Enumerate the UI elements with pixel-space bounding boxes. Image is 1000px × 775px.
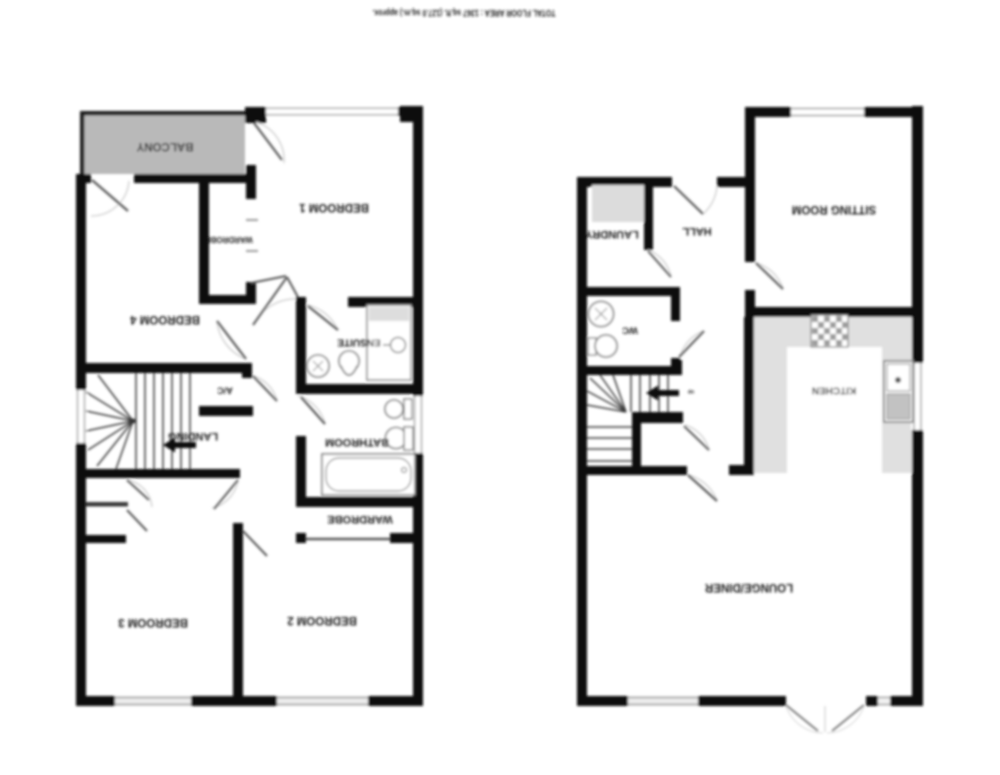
svg-text:BATHROOM: BATHROOM [325, 436, 389, 448]
svg-text:WARDROBE: WARDROBE [205, 235, 253, 244]
svg-text:ENSUITE: ENSUITE [337, 336, 381, 347]
svg-text:up: up [688, 389, 694, 395]
svg-text:BEDROOM 1: BEDROOM 1 [299, 201, 369, 213]
svg-text:BEDROOM 3: BEDROOM 3 [118, 616, 188, 628]
svg-text:A/C: A/C [217, 386, 233, 396]
svg-text:WC: WC [622, 324, 638, 335]
svg-text:SITTING ROOM: SITTING ROOM [792, 203, 876, 215]
svg-text:HALL: HALL [682, 225, 712, 237]
svg-text:BEDROOM 2: BEDROOM 2 [287, 614, 357, 626]
svg-text:TOTAL FLOOR AREA : 1367 sq.ft.: TOTAL FLOOR AREA : 1367 sq.ft. (127.0 sq… [373, 7, 556, 18]
svg-text:LAUNDRY: LAUNDRY [585, 228, 639, 240]
svg-text:BEDROOM 4: BEDROOM 4 [130, 313, 200, 325]
svg-text:LANDING: LANDING [168, 430, 218, 442]
svg-text:WARDROBE: WARDROBE [327, 513, 392, 525]
svg-text:KITCHEN: KITCHEN [812, 384, 856, 395]
svg-text:BALCONY: BALCONY [136, 140, 193, 152]
svg-text:LOUNGE/DINER: LOUNGE/DINER [704, 581, 793, 593]
